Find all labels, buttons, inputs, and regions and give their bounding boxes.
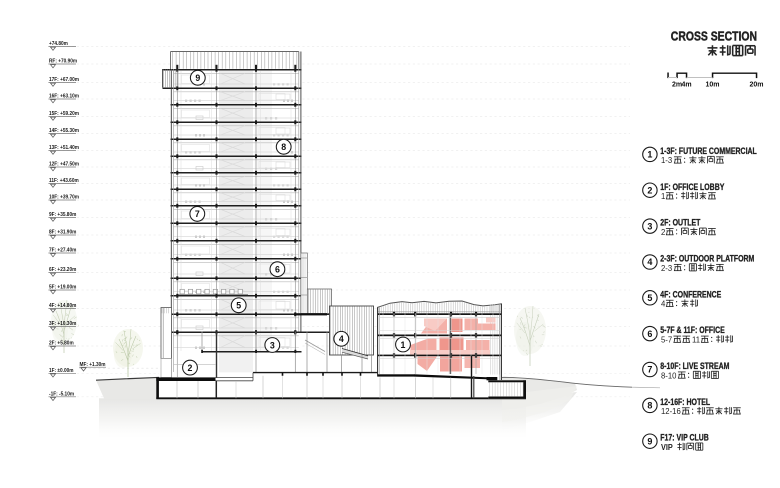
svg-text:5-7: 5-7 xyxy=(661,335,673,344)
svg-text:2F: +5.80m: 2F: +5.80m xyxy=(49,340,74,346)
svg-text:VIP: VIP xyxy=(661,442,673,452)
svg-text:8: 8 xyxy=(647,401,652,411)
svg-text:1F: ±0.00m: 1F: ±0.00m xyxy=(49,368,74,374)
svg-text:F17: VIP CLUB: F17: VIP CLUB xyxy=(660,433,709,443)
svg-text:2-3F: OUTDOOR PLATFORM: 2-3F: OUTDOOR PLATFORM xyxy=(660,254,754,264)
svg-text:9: 9 xyxy=(647,436,652,446)
svg-text:3: 3 xyxy=(647,221,652,231)
svg-text:11F: +43.60m: 11F: +43.60m xyxy=(49,178,79,184)
svg-text:8: 8 xyxy=(281,142,286,152)
svg-text:1F: OFFICE LOBBY: 1F: OFFICE LOBBY xyxy=(660,182,725,192)
svg-text:5: 5 xyxy=(647,293,652,303)
svg-text:2: 2 xyxy=(188,363,193,373)
svg-text:9F: +35.80m: 9F: +35.80m xyxy=(49,212,77,218)
svg-text:7F: +27.40m: 7F: +27.40m xyxy=(49,247,77,253)
svg-text:4: 4 xyxy=(661,299,666,308)
svg-text:1-3F: FUTURE COMMERCIAL: 1-3F: FUTURE COMMERCIAL xyxy=(660,146,757,156)
svg-text:4: 4 xyxy=(647,257,652,267)
svg-text:12-16: 12-16 xyxy=(661,407,681,416)
svg-text:4F: CONFERENCE: 4F: CONFERENCE xyxy=(660,290,721,300)
svg-text:14F: +55.30m: 14F: +55.30m xyxy=(49,128,79,134)
svg-text:2F: OUTLET: 2F: OUTLET xyxy=(660,218,700,228)
svg-text:6: 6 xyxy=(647,329,652,339)
svg-text:4F: +14.80m: 4F: +14.80m xyxy=(49,303,77,309)
svg-text:8F: +31.90m: 8F: +31.90m xyxy=(49,229,77,235)
svg-text:2: 2 xyxy=(661,228,666,237)
svg-text:5-7F & 11F: OFFICE: 5-7F & 11F: OFFICE xyxy=(660,325,724,335)
svg-text:12F: +47.50m: 12F: +47.50m xyxy=(49,161,79,167)
svg-text:CROSS SECTION: CROSS SECTION xyxy=(671,28,757,44)
svg-text:4m: 4m xyxy=(681,82,691,89)
svg-text:6: 6 xyxy=(275,265,280,275)
svg-text:13F: +51.40m: 13F: +51.40m xyxy=(49,145,79,151)
svg-text:5: 5 xyxy=(236,301,241,311)
svg-text:15F: +59.20m: 15F: +59.20m xyxy=(49,111,79,117)
svg-text:MF: +1.30m: MF: +1.30m xyxy=(80,362,106,368)
svg-text:4: 4 xyxy=(339,334,344,344)
svg-text:5F: +19.00m: 5F: +19.00m xyxy=(49,284,77,290)
svg-text:2: 2 xyxy=(647,185,652,195)
svg-text:11: 11 xyxy=(692,335,700,344)
svg-text:RF: +70.90m: RF: +70.90m xyxy=(49,58,78,64)
svg-text:10m: 10m xyxy=(705,82,719,89)
svg-text:+74.80m: +74.80m xyxy=(49,41,68,47)
svg-text:1: 1 xyxy=(661,192,666,201)
svg-text:1: 1 xyxy=(401,340,406,350)
svg-text:8-10F: LIVE STREAM: 8-10F: LIVE STREAM xyxy=(660,361,729,371)
svg-text:10F: +39.70m: 10F: +39.70m xyxy=(49,194,79,200)
svg-text:17F: +67.00m: 17F: +67.00m xyxy=(49,77,79,83)
svg-text:7: 7 xyxy=(647,365,652,375)
svg-text:8-10: 8-10 xyxy=(661,371,677,380)
svg-text:3F: +10.30m: 3F: +10.30m xyxy=(49,321,77,327)
svg-text:3: 3 xyxy=(270,340,275,350)
svg-text:6F: +23.20m: 6F: +23.20m xyxy=(49,267,77,273)
svg-text:2-3: 2-3 xyxy=(661,263,673,272)
svg-text:1: 1 xyxy=(647,150,652,160)
svg-text:1-3: 1-3 xyxy=(661,156,673,165)
svg-text:16F: +63.10m: 16F: +63.10m xyxy=(49,93,79,99)
svg-text:7: 7 xyxy=(195,209,200,219)
svg-text:20m: 20m xyxy=(749,82,763,89)
svg-text:-1F: -5.10m: -1F: -5.10m xyxy=(49,391,74,397)
svg-text:9: 9 xyxy=(195,73,200,83)
svg-text:12-16F: HOTEL: 12-16F: HOTEL xyxy=(660,397,710,407)
